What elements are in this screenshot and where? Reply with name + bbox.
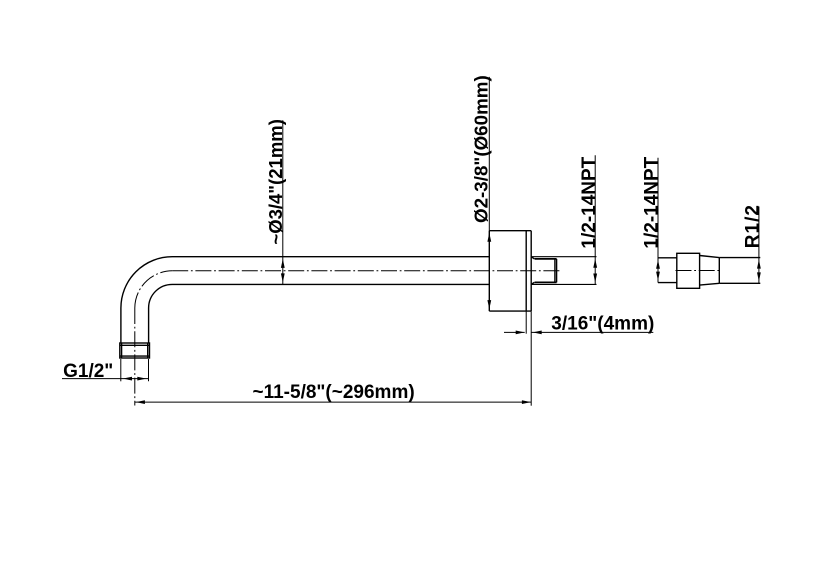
svg-text:1/2-14NPT: 1/2-14NPT (642, 156, 663, 248)
svg-text:~Ø3/4"(21mm): ~Ø3/4"(21mm) (265, 119, 286, 244)
svg-text:~11-5/8"(~296mm): ~11-5/8"(~296mm) (253, 382, 415, 403)
svg-text:G1/2": G1/2" (63, 361, 113, 382)
svg-text:1/2-14NPT: 1/2-14NPT (579, 156, 600, 248)
svg-text:3/16"(4mm): 3/16"(4mm) (551, 314, 654, 335)
svg-text:R1/2: R1/2 (743, 204, 764, 248)
svg-text:Ø2-3/8"(Ø60mm): Ø2-3/8"(Ø60mm) (471, 75, 492, 223)
